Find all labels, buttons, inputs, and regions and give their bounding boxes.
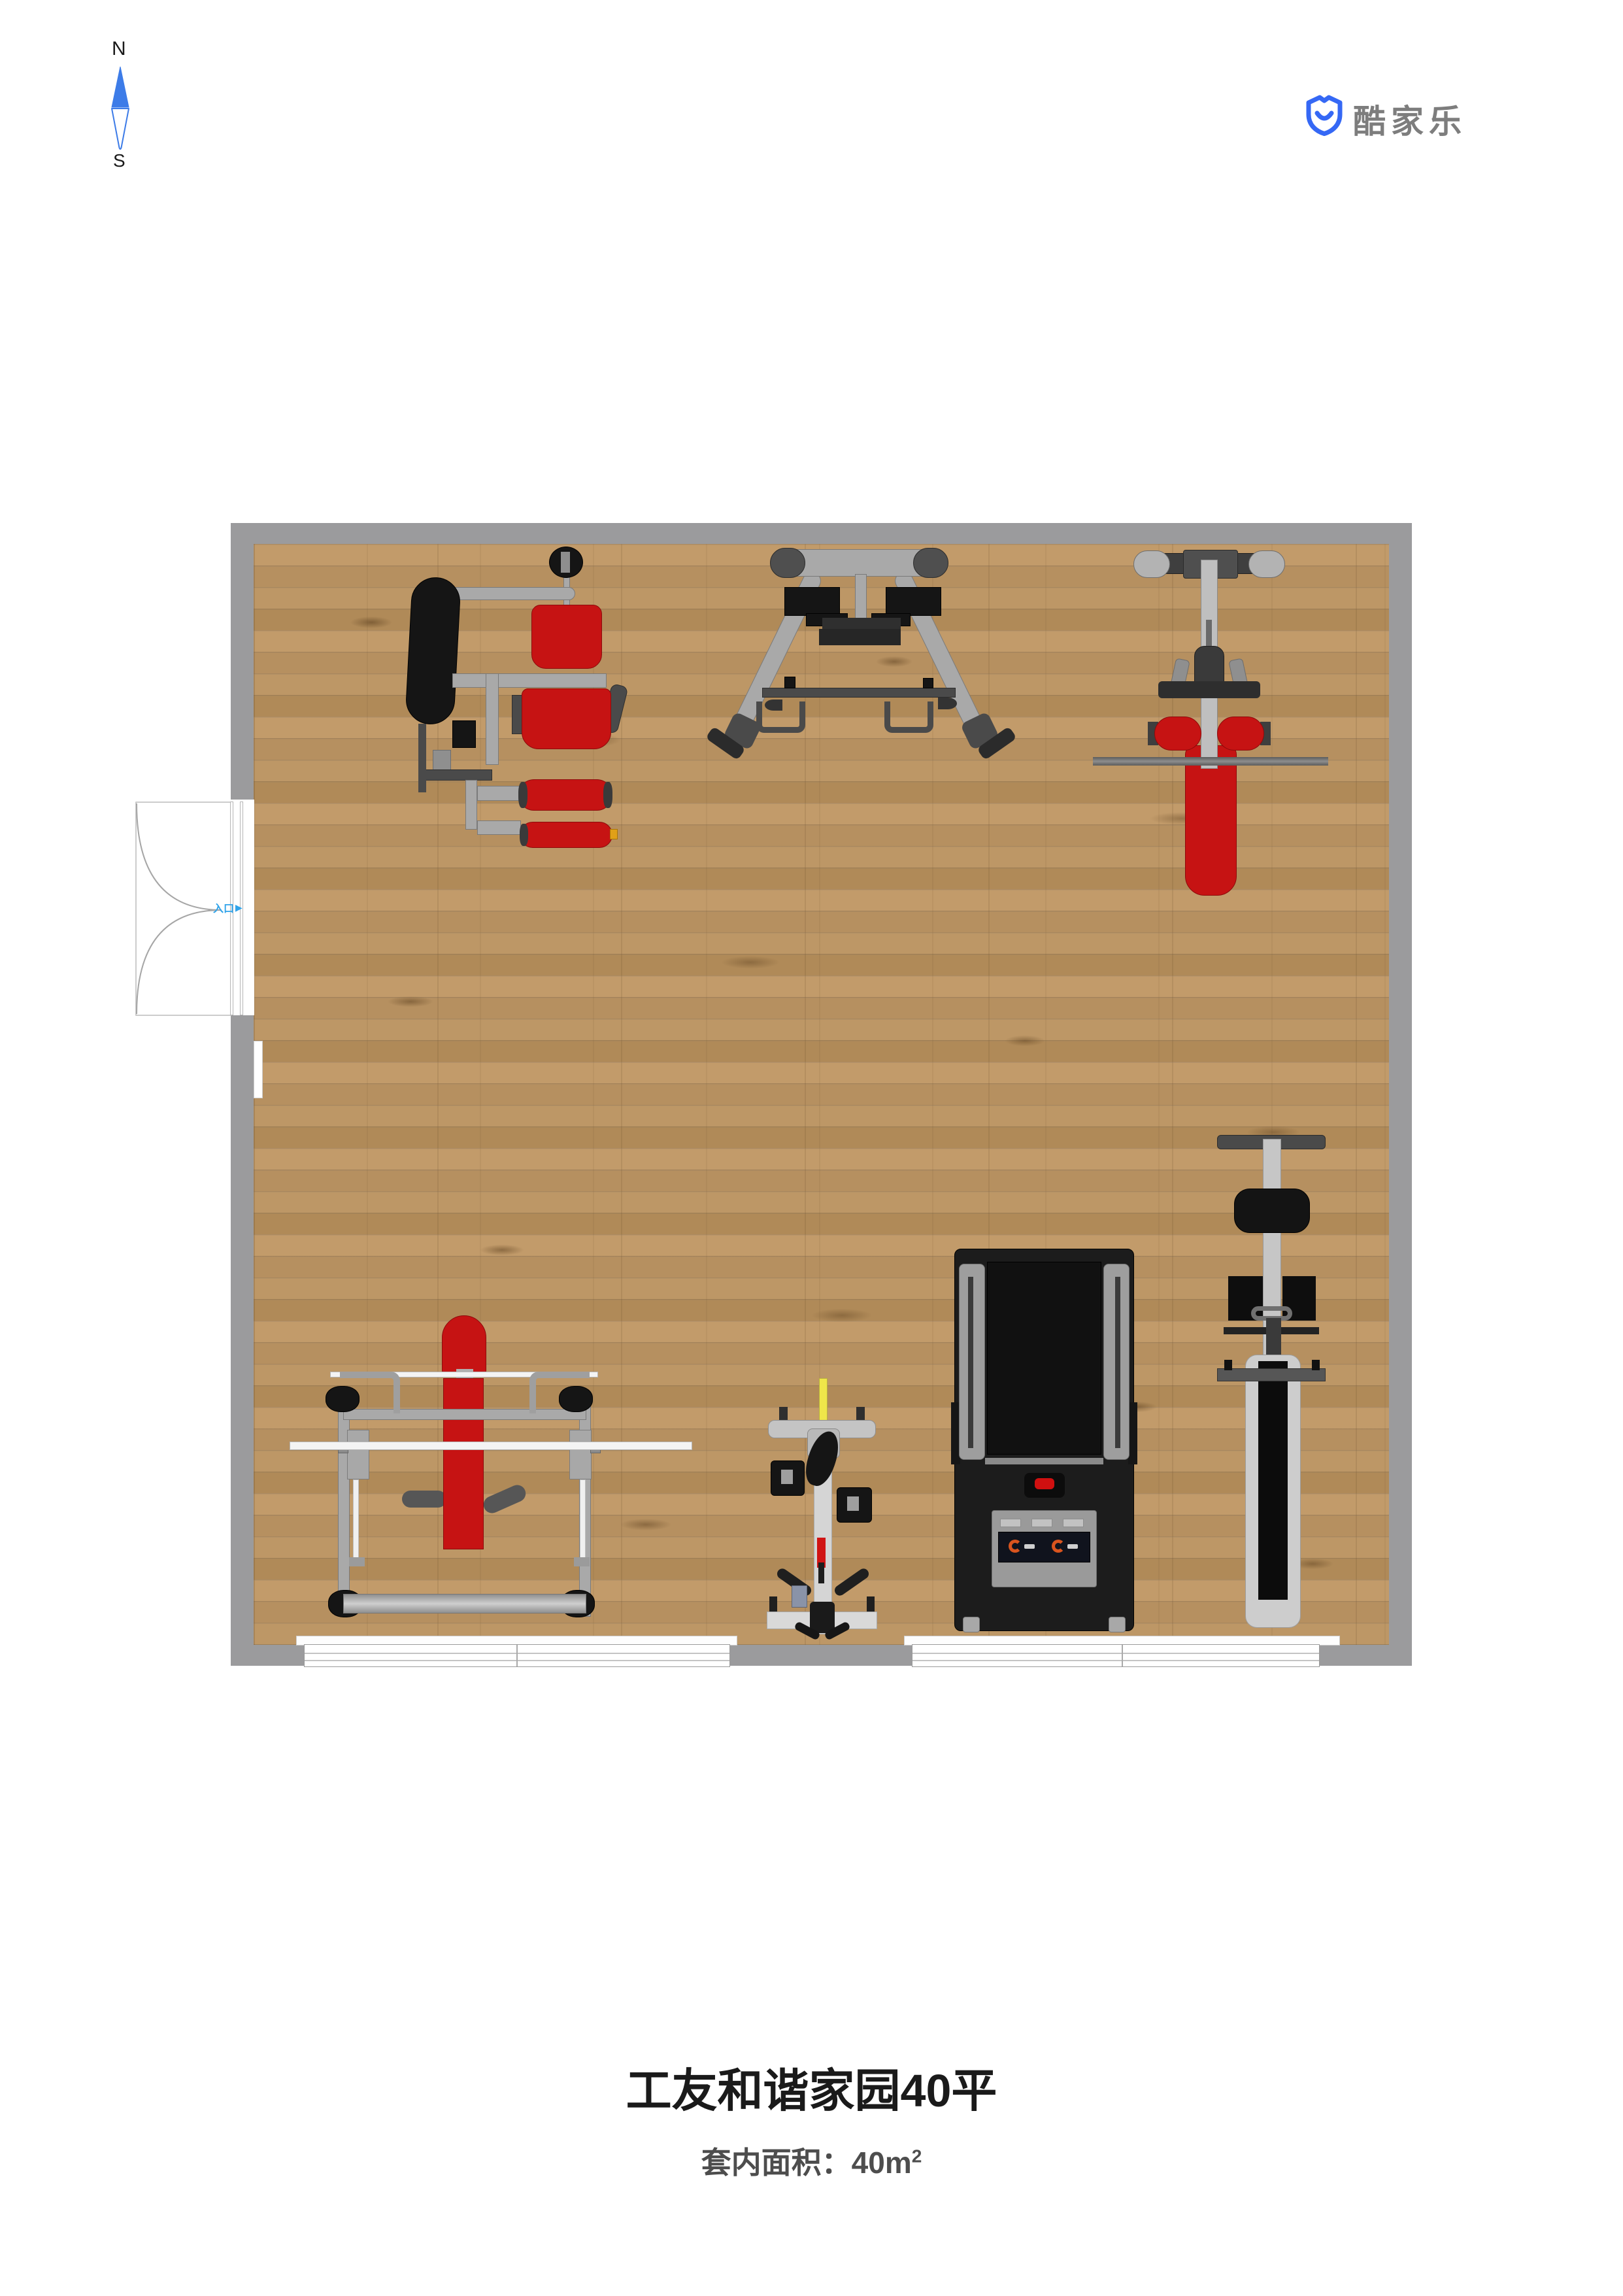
roller-arm — [477, 820, 521, 835]
foot-crossbar — [1217, 1368, 1326, 1381]
frame-bar — [452, 673, 607, 688]
pad — [886, 587, 941, 616]
window-mullion — [516, 1645, 518, 1666]
pad — [784, 587, 840, 616]
frame-decal-tip — [818, 1562, 824, 1583]
rail-groove — [968, 1277, 973, 1448]
compass-south-label: S — [113, 150, 125, 171]
window-mullion — [1122, 1645, 1123, 1666]
base-pad — [819, 629, 901, 645]
rack-base-bar — [343, 1594, 586, 1613]
lower-column — [1266, 1318, 1281, 1360]
frame-post — [486, 673, 499, 765]
curl-hook — [938, 698, 957, 709]
kujiale-shield-smile-icon — [1305, 93, 1344, 137]
handle-cap — [1133, 550, 1170, 578]
area-unit: m — [885, 2146, 912, 2180]
hook — [1224, 1360, 1232, 1370]
belt-end-trim — [985, 1458, 1103, 1464]
rear-brace — [833, 1566, 871, 1598]
base-bar — [418, 769, 492, 781]
rail-groove — [1115, 1277, 1120, 1448]
display-dial-icon — [1052, 1540, 1065, 1553]
crossbar — [1158, 681, 1260, 698]
side-rail — [418, 724, 426, 792]
compass-needle-icon — [107, 64, 133, 153]
handle-cap — [1248, 550, 1285, 578]
side-wing — [1128, 1402, 1137, 1464]
exercise-bike[interactable] — [761, 1366, 882, 1638]
wall-niche — [254, 1041, 263, 1098]
slide-rail — [353, 1479, 359, 1561]
barbell — [290, 1442, 692, 1450]
compass-north-label: N — [112, 38, 126, 60]
leg-roller — [518, 779, 612, 811]
entrance-text: 入口 — [213, 900, 234, 915]
brand-logo: 酷家乐 — [1305, 92, 1475, 139]
bench-leg — [402, 1491, 446, 1508]
roller-cap — [603, 782, 612, 808]
south-window-left[interactable] — [304, 1644, 730, 1667]
slide-rail — [580, 1479, 586, 1561]
bench-leg — [481, 1482, 529, 1515]
console-button[interactable] — [1031, 1519, 1052, 1527]
lat-pulldown-machine[interactable] — [1092, 549, 1330, 899]
chest-pad — [405, 576, 461, 726]
brand-name: 酷家乐 — [1353, 95, 1467, 143]
bench-headrest — [442, 1315, 486, 1376]
knee-roller — [1217, 717, 1264, 751]
corner-foot — [559, 1386, 593, 1412]
running-belt — [987, 1262, 1101, 1455]
entrance-arrow-icon: ▶ — [235, 902, 243, 913]
disc-hub — [561, 552, 570, 573]
window-pane-line — [912, 1653, 1319, 1654]
floor-plan-page: N S 酷家乐 入口 ▶ — [0, 0, 1623, 2296]
roller-arm — [477, 786, 521, 801]
hook — [784, 677, 795, 688]
controller-box — [792, 1585, 807, 1608]
multi-station-gym[interactable] — [392, 543, 641, 850]
slide-carriage — [569, 1430, 592, 1479]
center-post — [855, 574, 867, 620]
display-readout — [1067, 1544, 1078, 1549]
plan-area: 套内面积：40m2 — [0, 2139, 1623, 2182]
treadmill[interactable] — [951, 1245, 1137, 1638]
plan-title: 工友和谐家园40平 — [0, 2054, 1623, 2120]
emergency-stop-button[interactable] — [1035, 1478, 1054, 1489]
window-pane-line — [912, 1660, 1319, 1661]
corner-foot — [326, 1386, 360, 1412]
rack-upright — [338, 1391, 350, 1617]
seat-backrest — [531, 605, 602, 669]
pedal-plate — [781, 1470, 793, 1484]
top-bar-cap — [770, 548, 805, 578]
weight-stack-box — [452, 720, 476, 748]
slide-carriage — [347, 1430, 369, 1479]
knee-roller — [1154, 717, 1201, 751]
display-dial-icon — [1009, 1540, 1022, 1553]
foot — [963, 1617, 980, 1632]
roller-end-knob — [610, 829, 618, 839]
foot — [1109, 1617, 1126, 1632]
bench-pad-center — [1258, 1361, 1288, 1600]
hook — [1312, 1360, 1320, 1370]
leg-roller — [520, 822, 612, 848]
entrance-label: 入口 ▶ — [213, 900, 243, 915]
seat-pad — [522, 688, 611, 749]
frame-post — [465, 780, 477, 830]
u-loop — [884, 701, 933, 733]
console-button[interactable] — [1000, 1519, 1021, 1527]
curl-hook — [765, 700, 782, 711]
crossbar — [762, 688, 956, 698]
floor-rail — [1093, 757, 1328, 766]
bench-pad — [443, 1378, 484, 1549]
south-window-right[interactable] — [912, 1644, 1320, 1667]
compass: N S — [105, 38, 144, 175]
display-readout — [1024, 1544, 1035, 1549]
bench-press-rack[interactable] — [288, 1314, 696, 1621]
roller-cap — [518, 782, 527, 808]
back-pad — [1234, 1189, 1310, 1233]
rail-foot — [349, 1557, 365, 1566]
weight-bench-machine[interactable] — [1213, 1131, 1330, 1628]
hook — [923, 678, 933, 688]
a-frame-rack[interactable] — [699, 548, 1023, 773]
pedal-plate — [847, 1496, 859, 1511]
console-button[interactable] — [1063, 1519, 1084, 1527]
rail-foot — [574, 1557, 590, 1566]
area-superscript: 2 — [912, 2146, 922, 2167]
area-label: 套内面积：40 — [701, 2146, 885, 2180]
top-bar-cap — [913, 548, 948, 578]
roller-cap — [520, 824, 528, 846]
